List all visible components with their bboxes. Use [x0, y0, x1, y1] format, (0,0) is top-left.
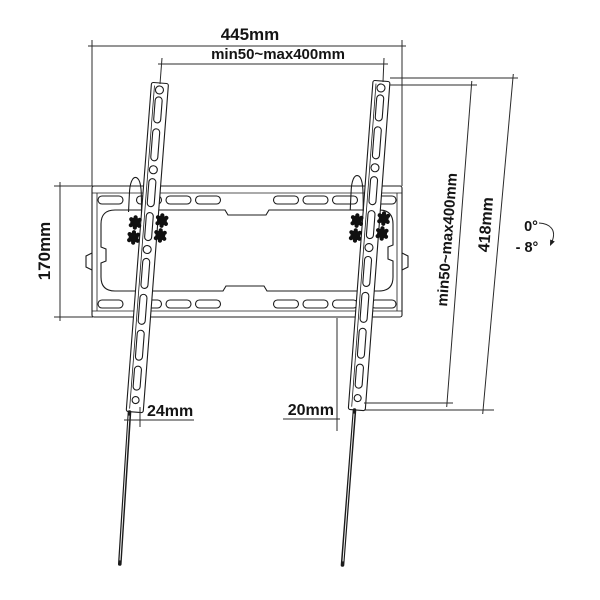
- bottom-left-label: 24mm: [147, 403, 193, 420]
- tv-mount-dimension-diagram: 445mm min50~max400mm 170mm min50~max400m…: [0, 0, 600, 600]
- tilt-rod-right: [343, 410, 355, 565]
- tilt-min-label: - 8°: [516, 240, 539, 256]
- side-tab-right: [402, 253, 408, 270]
- dim-bottom-right: 20mm: [283, 318, 340, 431]
- side-tab-left: [86, 253, 92, 270]
- bottom-right-label: 20mm: [288, 402, 334, 419]
- tilt-arc-arrow: [539, 223, 554, 242]
- tilt-angle-annotation: 0° - 8°: [516, 219, 555, 256]
- vesa-width-label: min50~max400mm: [211, 46, 345, 63]
- bracket-length-label: 418mm: [476, 197, 497, 253]
- total-width-label: 445mm: [221, 25, 280, 44]
- tilt-max-label: 0°: [524, 219, 538, 235]
- plate-height-label: 170mm: [35, 222, 54, 281]
- dim-plate-height: 170mm: [35, 182, 93, 321]
- vesa-height-label: min50~max400mm: [434, 172, 461, 307]
- tilt-rod-left: [120, 412, 130, 564]
- dim-vesa-width: min50~max400mm: [158, 46, 388, 84]
